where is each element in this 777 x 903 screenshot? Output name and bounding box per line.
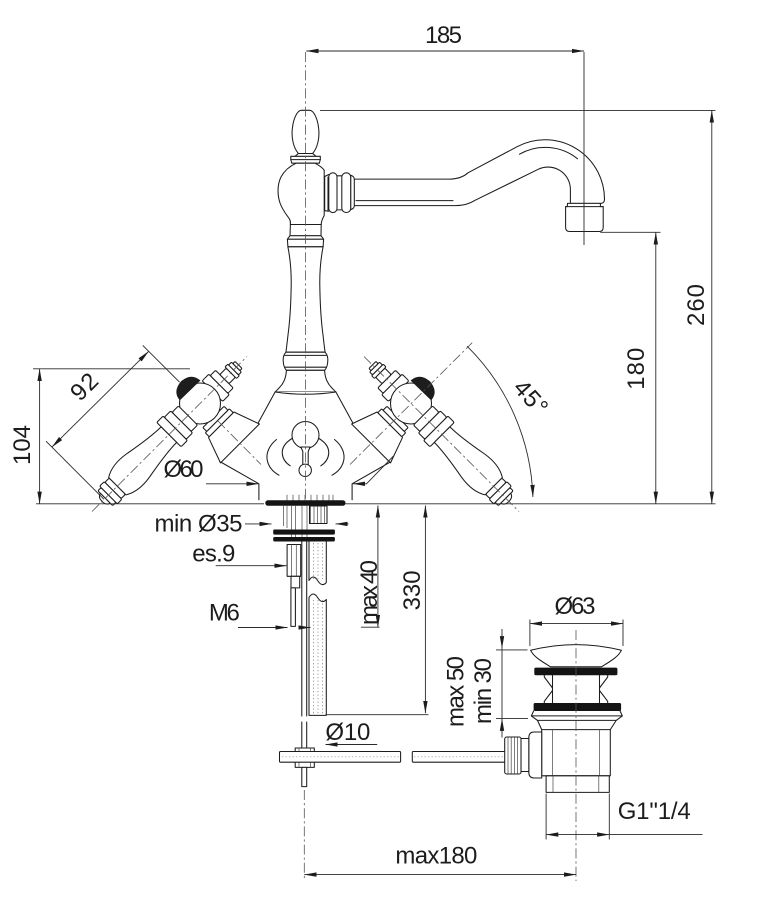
svg-text:max 40: max 40	[356, 560, 383, 625]
svg-text:G1"1/4: G1"1/4	[618, 798, 691, 825]
svg-text:max 50: max 50	[442, 656, 469, 727]
svg-text:180: 180	[623, 348, 650, 390]
svg-text:Ø10: Ø10	[325, 719, 370, 746]
svg-text:330: 330	[399, 570, 426, 610]
svg-text:min Ø35: min Ø35	[155, 511, 243, 538]
svg-text:min 30: min 30	[470, 658, 497, 724]
svg-text:Ø63: Ø63	[555, 593, 596, 620]
svg-text:M6: M6	[209, 600, 240, 627]
svg-text:185: 185	[425, 22, 462, 49]
svg-text:max180: max180	[395, 843, 477, 870]
svg-text:es.9: es.9	[192, 541, 235, 568]
svg-text:Ø60: Ø60	[164, 456, 204, 483]
svg-text:104: 104	[9, 425, 36, 465]
svg-text:260: 260	[683, 284, 710, 326]
